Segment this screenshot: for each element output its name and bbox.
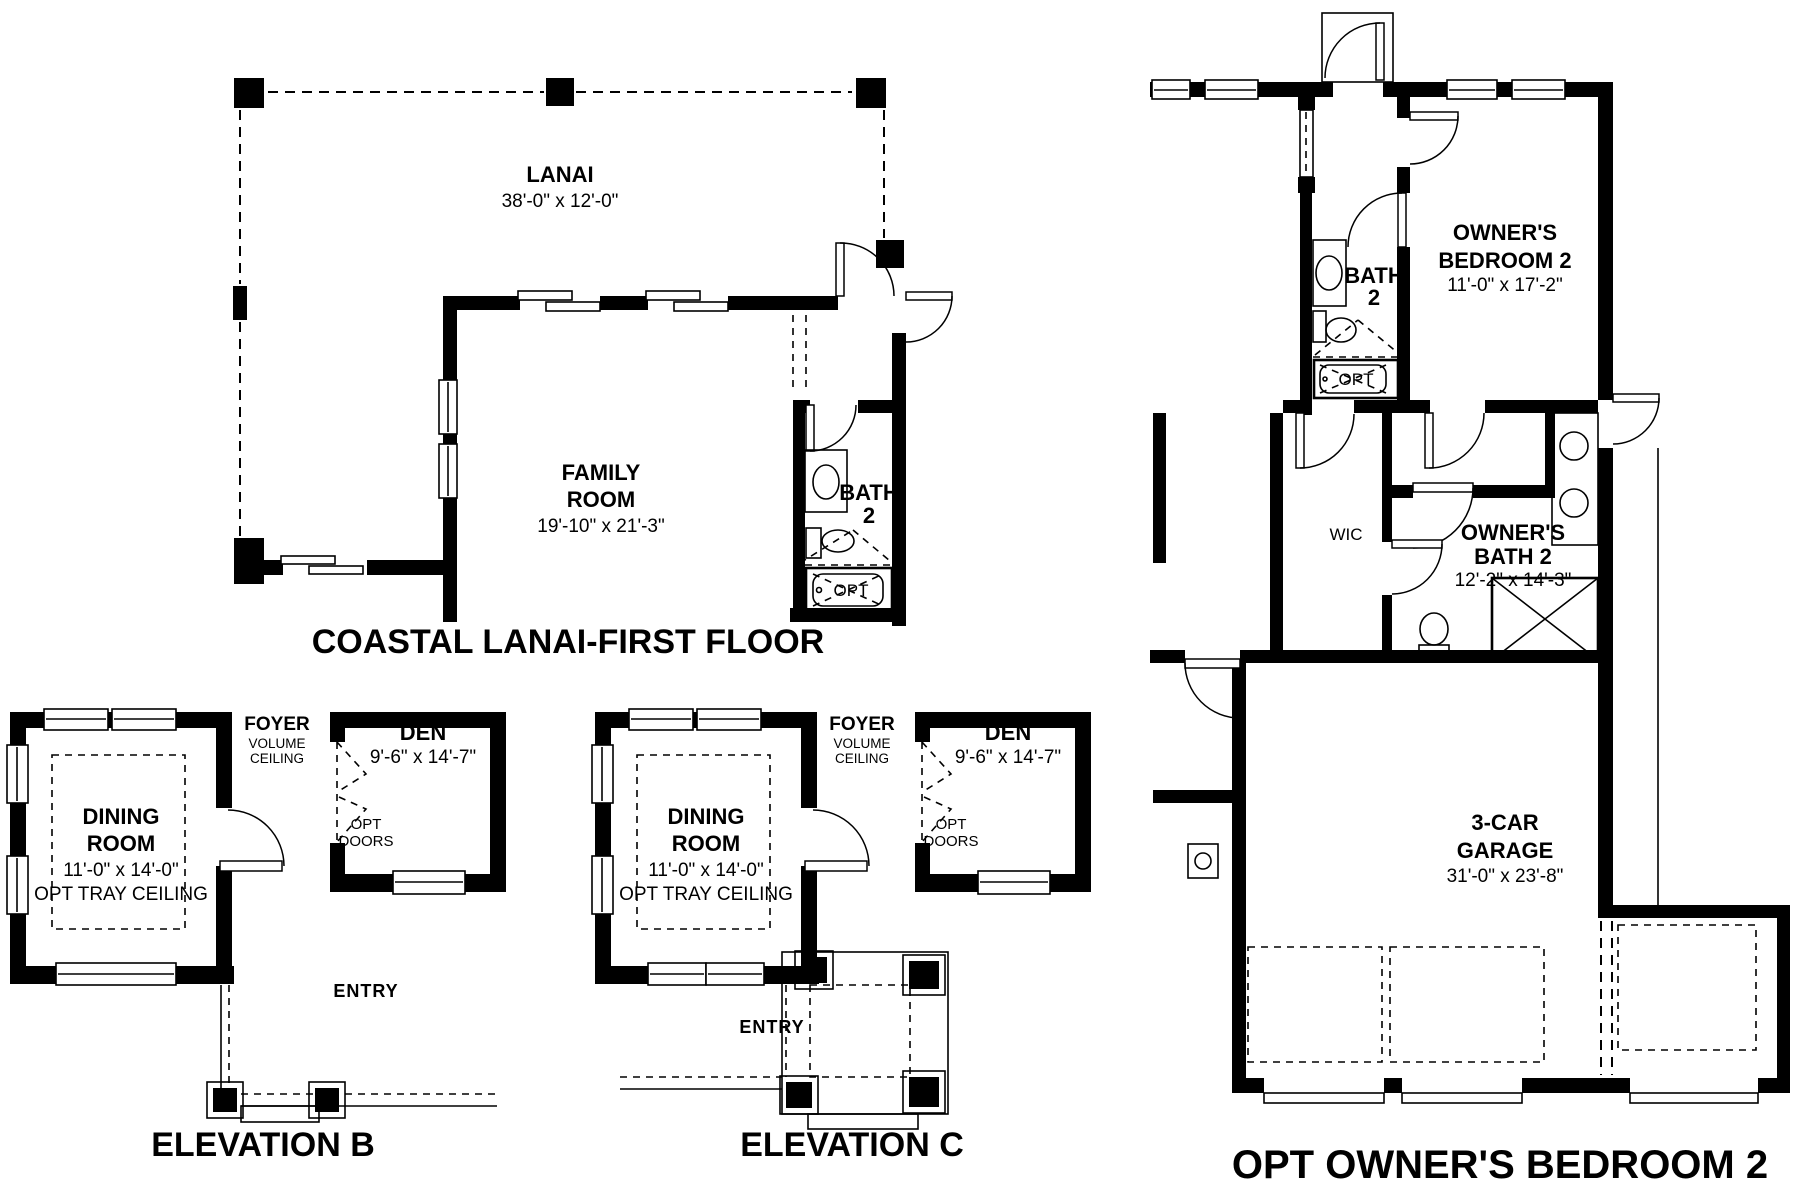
entry-outline — [221, 985, 497, 1122]
plan-title-elevation-b: ELEVATION B — [151, 1126, 375, 1164]
plan-first-floor: LANAI 38'-0" x 12'-0" FAMILY ROOM 19'-10… — [233, 78, 952, 661]
foyer-note-1: VOLUME — [248, 736, 305, 751]
floor-plan-canvas: LANAI 38'-0" x 12'-0" FAMILY ROOM 19'-10… — [0, 0, 1800, 1200]
dining-label-1: DINING — [83, 804, 160, 829]
garage-dims: 31'-0" x 23'-8" — [1447, 866, 1564, 887]
utility-fixture — [1188, 844, 1218, 878]
garage-label-2: GARAGE — [1457, 838, 1554, 863]
family-room-label-1: FAMILY — [562, 460, 641, 485]
door-swing — [220, 810, 284, 871]
sink-fixture — [1313, 240, 1346, 306]
dining-note: OPT TRAY CEILING — [619, 884, 793, 905]
garage-label-1: 3-CAR — [1471, 810, 1538, 835]
plan-owners-suite: OWNER'S BEDROOM 2 11'-0" x 17'-2" BATH 2… — [1150, 13, 1790, 1187]
owners-bedroom-dims: 11'-0" x 17'-2" — [1447, 275, 1562, 296]
foyer-note-2: CEILING — [250, 751, 304, 766]
lanai-label: LANAI — [526, 162, 593, 187]
owners-bath-label-1: OWNER'S — [1461, 520, 1565, 545]
dining-label-2: ROOM — [672, 831, 740, 856]
foyer-label: FOYER — [829, 714, 895, 735]
bath2-label-2: 2 — [863, 503, 875, 528]
opt-tub-label: OPT — [834, 581, 869, 600]
entry-vestibule — [1322, 13, 1393, 82]
lanai-dims: 38'-0" x 12'-0" — [502, 191, 619, 212]
den-dims: 9'-6" x 14'-7" — [955, 747, 1061, 768]
opt-doors-label-1: OPT — [351, 816, 382, 833]
dining-label-1: DINING — [668, 804, 745, 829]
plan-title-first-floor: COASTAL LANAI-FIRST FLOOR — [312, 623, 824, 661]
porch-posts — [207, 1082, 345, 1118]
family-room-label-2: ROOM — [567, 487, 635, 512]
entry-porch — [780, 951, 948, 1129]
door-swing — [805, 810, 869, 871]
foyer-note-1: VOLUME — [833, 736, 890, 751]
opt-doors-label-2: DOORS — [338, 833, 393, 850]
opt-tub-label: OPT — [1339, 370, 1374, 389]
foyer-label: FOYER — [244, 714, 310, 735]
plan-title-elevation-c: ELEVATION C — [740, 1126, 964, 1164]
bath2-label-1: BATH — [839, 480, 898, 505]
den-label: DEN — [985, 720, 1031, 745]
owners-bath-dims: 12'-2" x 14'-3" — [1455, 570, 1572, 591]
hall-opening-dashes — [793, 302, 806, 392]
entry-label: ENTRY — [739, 1017, 804, 1037]
opt-doors-label-2: DOORS — [923, 833, 978, 850]
entry-label: ENTRY — [333, 981, 398, 1001]
den-dims: 9'-6" x 14'-7" — [370, 747, 476, 768]
dining-note: OPT TRAY CEILING — [34, 884, 208, 905]
plan-elevation-c: DINING ROOM 11'-0" x 14'-0" OPT TRAY CEI… — [592, 709, 1091, 1164]
owners-bedroom-label-1: OWNER'S — [1453, 220, 1557, 245]
floor-plan-sheet: LANAI 38'-0" x 12'-0" FAMILY ROOM 19'-10… — [0, 0, 1800, 1200]
shower-dash-lines — [800, 530, 890, 565]
door-swing — [806, 243, 952, 451]
opt-doors-label-1: OPT — [936, 816, 967, 833]
room-labels: LANAI 38'-0" x 12'-0" FAMILY ROOM 19'-10… — [502, 162, 899, 600]
room-labels: DINING ROOM 11'-0" x 14'-0" OPT TRAY CEI… — [34, 714, 476, 1001]
plan-elevation-b: DINING ROOM 11'-0" x 14'-0" OPT TRAY CEI… — [7, 709, 506, 1164]
door-swing — [1185, 112, 1659, 718]
toilet-fixture — [806, 528, 854, 558]
dining-dims: 11'-0" x 14'-0" — [63, 860, 178, 881]
dining-label-2: ROOM — [87, 831, 155, 856]
room-labels: OWNER'S BEDROOM 2 11'-0" x 17'-2" BATH 2… — [1329, 220, 1571, 887]
plan-title-owners-suite: OPT OWNER'S BEDROOM 2 — [1232, 1143, 1768, 1187]
owners-bedroom-label-2: BEDROOM 2 — [1438, 248, 1571, 273]
family-room-dims: 19'-10" x 21'-3" — [537, 516, 664, 537]
den-label: DEN — [400, 720, 446, 745]
entry-outline — [620, 1077, 782, 1089]
wic-label: WIC — [1329, 525, 1362, 544]
bath2-label-2: 2 — [1368, 285, 1380, 310]
foyer-note-2: CEILING — [835, 751, 889, 766]
owners-bath-label-2: BATH 2 — [1474, 544, 1552, 569]
cased-opening — [1300, 110, 1313, 177]
dining-dims: 11'-0" x 14'-0" — [648, 860, 763, 881]
